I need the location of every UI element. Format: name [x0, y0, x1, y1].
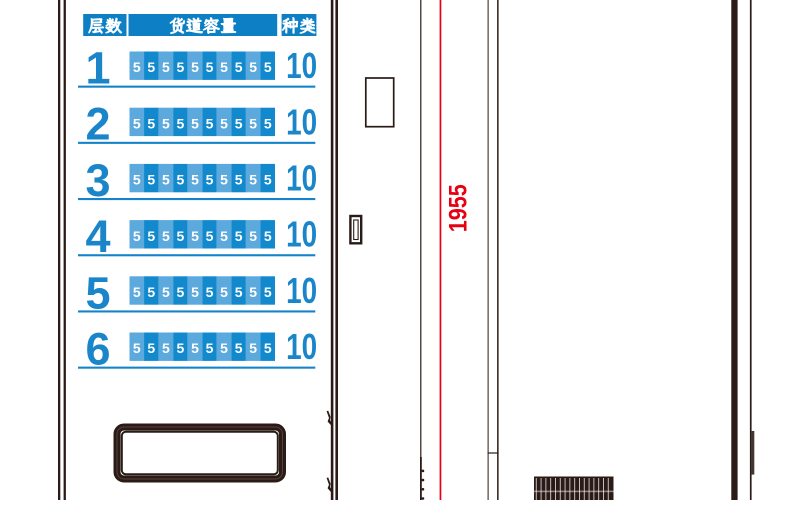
svg-text:5: 5	[206, 340, 214, 356]
svg-text:5: 5	[133, 115, 141, 131]
svg-text:5: 5	[147, 228, 155, 244]
svg-text:5: 5	[235, 172, 243, 188]
svg-text:5: 5	[162, 340, 170, 356]
svg-text:1955: 1955	[445, 184, 473, 232]
svg-text:5: 5	[133, 172, 141, 188]
svg-text:5: 5	[147, 284, 155, 300]
svg-text:5: 5	[264, 284, 272, 300]
svg-text:5: 5	[220, 115, 228, 131]
svg-text:5: 5	[162, 115, 170, 131]
svg-text:5: 5	[177, 59, 185, 75]
svg-text:5: 5	[249, 340, 257, 356]
svg-text:5: 5	[162, 284, 170, 300]
svg-text:5: 5	[206, 172, 214, 188]
svg-text:5: 5	[264, 228, 272, 244]
svg-text:5: 5	[133, 228, 141, 244]
svg-text:5: 5	[162, 59, 170, 75]
svg-text:5: 5	[191, 115, 199, 131]
svg-text:5: 5	[206, 59, 214, 75]
svg-text:5: 5	[162, 228, 170, 244]
svg-text:5: 5	[220, 284, 228, 300]
svg-text:5: 5	[249, 115, 257, 131]
svg-text:5: 5	[235, 228, 243, 244]
svg-text:5: 5	[249, 228, 257, 244]
svg-text:5: 5	[206, 228, 214, 244]
svg-text:5: 5	[264, 340, 272, 356]
svg-text:5: 5	[177, 115, 185, 131]
svg-text:5: 5	[191, 340, 199, 356]
svg-text:5: 5	[191, 284, 199, 300]
svg-text:5: 5	[235, 340, 243, 356]
svg-text:10: 10	[286, 158, 317, 199]
svg-text:5: 5	[133, 340, 141, 356]
svg-text:5: 5	[264, 115, 272, 131]
svg-text:5: 5	[249, 172, 257, 188]
svg-text:5: 5	[235, 115, 243, 131]
svg-text:5: 5	[177, 228, 185, 244]
svg-text:10: 10	[286, 101, 317, 142]
svg-text:5: 5	[264, 172, 272, 188]
svg-text:5: 5	[220, 228, 228, 244]
svg-text:5: 5	[147, 59, 155, 75]
svg-text:5: 5	[191, 228, 199, 244]
svg-text:5: 5	[235, 59, 243, 75]
svg-text:5: 5	[220, 340, 228, 356]
svg-text:5: 5	[133, 284, 141, 300]
svg-text:10: 10	[286, 214, 317, 255]
svg-text:10: 10	[286, 326, 317, 367]
svg-text:5: 5	[191, 59, 199, 75]
svg-text:5: 5	[220, 59, 228, 75]
svg-text:5: 5	[177, 340, 185, 356]
svg-text:5: 5	[147, 340, 155, 356]
svg-text:5: 5	[162, 172, 170, 188]
svg-text:5: 5	[249, 59, 257, 75]
svg-text:5: 5	[220, 172, 228, 188]
svg-text:5: 5	[206, 284, 214, 300]
svg-text:10: 10	[286, 270, 317, 311]
svg-text:5: 5	[249, 284, 257, 300]
svg-text:5: 5	[264, 59, 272, 75]
svg-text:5: 5	[147, 115, 155, 131]
svg-text:5: 5	[206, 115, 214, 131]
svg-text:5: 5	[235, 284, 243, 300]
svg-text:10: 10	[286, 45, 317, 86]
svg-text:5: 5	[191, 172, 199, 188]
svg-text:5: 5	[177, 172, 185, 188]
svg-text:5: 5	[147, 172, 155, 188]
svg-text:5: 5	[133, 59, 141, 75]
svg-text:5: 5	[177, 284, 185, 300]
